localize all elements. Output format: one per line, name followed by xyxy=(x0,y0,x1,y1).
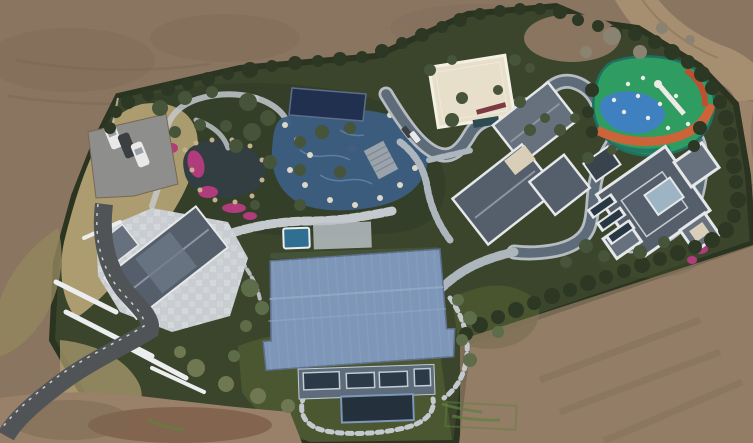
play-dot xyxy=(666,126,670,130)
tree xyxy=(152,100,168,116)
tree xyxy=(718,222,734,238)
barn-roof-seams xyxy=(260,249,456,371)
tree xyxy=(240,320,252,332)
tree xyxy=(447,55,457,65)
play-dot xyxy=(636,94,640,98)
tree xyxy=(174,346,186,358)
spa-pool xyxy=(283,228,310,249)
tree xyxy=(312,55,324,67)
boulder xyxy=(327,197,333,203)
tree xyxy=(194,119,206,131)
tree xyxy=(161,82,175,96)
tree xyxy=(445,113,459,127)
tree xyxy=(653,252,667,266)
tree xyxy=(474,8,486,20)
tree xyxy=(294,164,306,176)
tree xyxy=(255,301,269,315)
tree xyxy=(228,350,240,362)
tree xyxy=(396,37,408,49)
tree xyxy=(294,136,306,148)
tree xyxy=(648,35,662,49)
bare-tree xyxy=(580,46,592,58)
tree xyxy=(727,209,741,223)
tree xyxy=(201,72,215,86)
tree xyxy=(560,256,572,268)
boulder xyxy=(282,122,288,128)
tree xyxy=(582,106,594,118)
tree xyxy=(514,3,526,15)
tree xyxy=(169,126,181,138)
tree xyxy=(452,294,464,306)
barn-window xyxy=(346,372,375,388)
play-dot xyxy=(626,82,630,86)
tree xyxy=(634,257,650,273)
tree xyxy=(514,96,526,108)
tree xyxy=(333,52,347,66)
tree xyxy=(288,56,302,70)
tree xyxy=(220,120,232,132)
tree xyxy=(563,283,577,297)
pool-cover xyxy=(289,88,366,121)
rock xyxy=(210,138,215,143)
tree xyxy=(243,123,261,141)
tree xyxy=(206,86,218,98)
tree xyxy=(424,64,436,76)
tree xyxy=(694,66,710,82)
tree xyxy=(509,54,521,66)
tree xyxy=(524,124,536,136)
tree xyxy=(586,126,598,138)
tree xyxy=(658,236,670,248)
tree xyxy=(592,20,604,32)
play-dot xyxy=(612,98,616,102)
tree xyxy=(585,83,599,97)
slide-top xyxy=(654,80,662,88)
tree xyxy=(415,28,429,42)
tree xyxy=(456,334,468,346)
tree xyxy=(241,279,259,297)
tree xyxy=(579,239,593,253)
aerial-photo xyxy=(0,0,753,443)
tree xyxy=(598,250,610,262)
tree xyxy=(572,14,584,26)
tree xyxy=(534,3,546,15)
tree xyxy=(527,296,541,310)
rock xyxy=(213,198,218,203)
tree xyxy=(704,232,720,248)
tree xyxy=(334,166,346,178)
tree xyxy=(725,143,739,157)
tree xyxy=(260,110,276,126)
tree xyxy=(229,139,243,153)
tree xyxy=(222,68,234,80)
play-dot xyxy=(686,122,690,126)
tree xyxy=(456,92,468,104)
tree xyxy=(178,91,192,105)
play-dot xyxy=(658,102,662,106)
tree xyxy=(142,89,154,101)
boulder xyxy=(377,195,383,201)
tree xyxy=(242,62,258,78)
bare-tree xyxy=(633,45,647,59)
boulder xyxy=(307,152,313,158)
rock xyxy=(183,148,188,153)
tree xyxy=(729,175,743,189)
tree xyxy=(570,113,580,123)
azalea-patch xyxy=(243,212,257,220)
barn-window xyxy=(379,371,408,387)
rock xyxy=(190,168,195,173)
tree xyxy=(250,200,260,210)
tree xyxy=(693,121,707,135)
tree xyxy=(294,199,306,211)
tree xyxy=(540,113,550,123)
tree xyxy=(436,21,448,33)
tree xyxy=(670,245,686,261)
tree xyxy=(463,311,477,325)
azalea-patch xyxy=(222,203,246,213)
play-dot xyxy=(646,116,650,120)
play-dot xyxy=(674,94,678,98)
boulder xyxy=(397,182,403,188)
tree xyxy=(580,275,596,291)
tree xyxy=(315,125,329,139)
bare-tree xyxy=(656,22,668,34)
tree xyxy=(726,158,742,174)
tree xyxy=(664,44,680,60)
rock xyxy=(198,188,203,193)
tree xyxy=(628,27,642,41)
boulder xyxy=(302,182,308,188)
tree xyxy=(554,124,566,136)
tree xyxy=(182,78,194,90)
tree xyxy=(688,140,700,152)
tree xyxy=(187,359,205,377)
tree xyxy=(723,127,737,141)
rock xyxy=(248,144,253,149)
tree xyxy=(553,5,567,19)
barn-window xyxy=(414,368,431,386)
tree xyxy=(713,95,727,109)
tree xyxy=(463,353,477,367)
boulder xyxy=(352,202,358,208)
tree xyxy=(250,388,266,404)
tree xyxy=(599,270,613,284)
play-dot xyxy=(622,110,626,114)
play-dot xyxy=(641,76,645,80)
dirt-mound xyxy=(150,14,300,62)
tree xyxy=(617,264,631,278)
tree xyxy=(607,145,617,155)
azalea-patch xyxy=(687,256,697,264)
tree xyxy=(492,326,504,338)
tree xyxy=(681,55,695,69)
rock xyxy=(260,178,265,183)
barn-patio xyxy=(313,221,372,249)
tree xyxy=(375,44,389,58)
boulder xyxy=(287,167,293,173)
tree xyxy=(494,5,506,17)
barn-deck xyxy=(341,394,414,422)
tree xyxy=(356,51,368,63)
bare-tree xyxy=(685,35,695,45)
tree xyxy=(491,310,505,324)
tree xyxy=(718,110,734,126)
tree xyxy=(239,93,257,111)
tree xyxy=(453,13,467,27)
tree xyxy=(121,95,135,109)
tree xyxy=(263,155,277,169)
tree xyxy=(688,240,702,254)
tree xyxy=(582,152,594,164)
tree xyxy=(705,81,719,95)
tree xyxy=(493,85,503,95)
tree xyxy=(266,60,278,72)
tree xyxy=(218,376,234,392)
tree xyxy=(508,302,524,318)
rock xyxy=(194,141,199,146)
rock xyxy=(233,200,238,205)
tree xyxy=(525,63,535,73)
tree xyxy=(730,192,746,208)
tree xyxy=(344,122,356,134)
tree xyxy=(281,399,295,413)
tree xyxy=(104,122,116,134)
tree xyxy=(110,106,122,118)
tree xyxy=(544,288,560,304)
rock xyxy=(250,194,255,199)
barn-window xyxy=(303,372,340,390)
bare-tree xyxy=(603,27,621,45)
aerial-photo-canvas xyxy=(0,0,753,443)
tree xyxy=(633,245,647,259)
